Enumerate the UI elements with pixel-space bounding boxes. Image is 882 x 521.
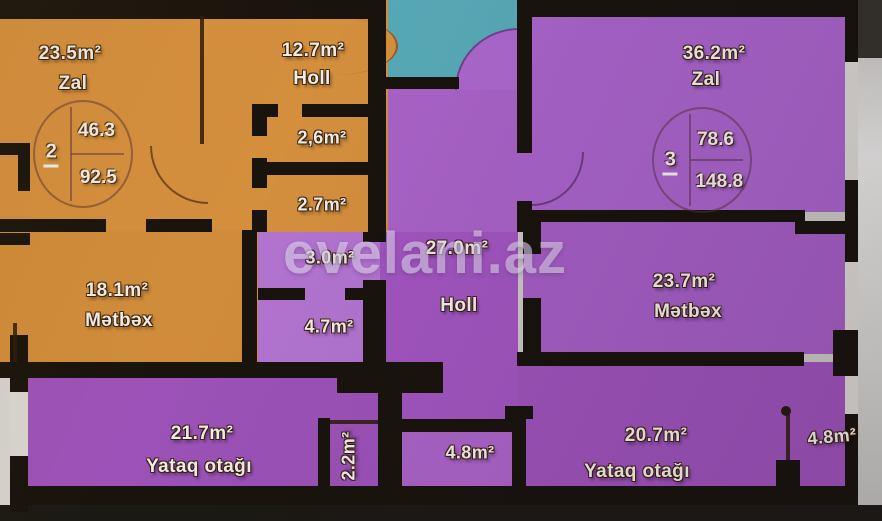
label-wc-left-area: 2.7m² [297,195,346,216]
unit-3-living-area: 78.6 [697,129,734,151]
wall [10,456,28,512]
balcony-rail [13,323,17,365]
balcony-wall [0,233,30,245]
door-pivot-dot [781,406,791,416]
wall [302,104,386,117]
wall [252,210,267,232]
label-holl-right-name: Holl [440,295,478,317]
wall [242,230,257,364]
wall [845,180,858,262]
label-balcony-center-area: 4.8m² [445,443,494,464]
wall [378,419,518,432]
unit-3-total-area: 148.8 [695,171,743,193]
circle-divider-horizontal [690,159,743,161]
photo-bottom-band [0,505,882,521]
unit-3-info-circle: 3 78.6 148.8 [652,107,752,213]
label-metbex-right-area: 23.7m² [653,271,716,293]
label-holl-left-name: Holl [293,68,331,90]
wall [318,418,330,488]
label-holl-left-area: 12.7m² [282,40,345,62]
door-line [786,412,790,464]
door-line [330,420,378,424]
unit-2-info-circle: 2 46.3 92.5 [33,100,133,208]
unit-2-number: 2 [44,141,59,168]
window [10,392,28,456]
wall [517,0,858,17]
label-metbex-left-name: Mətbəx [85,310,153,332]
wall [252,158,267,188]
label-bath-left-area: 2,6m² [297,128,346,149]
unit-2-total-area: 92.5 [80,167,117,189]
label-bedroom-left-area: 21.7m² [171,423,234,445]
wall [795,221,845,234]
label-metbex-left-area: 18.1m² [86,280,149,302]
label-bedroom-right-name: Yataq otağı [584,461,690,483]
label-closet-area: 2.2m² [339,431,360,480]
window [845,62,858,180]
window [845,376,858,414]
scan-edge-right [858,0,882,521]
label-zal-right-area: 36.2m² [683,43,746,65]
label-zal-right-name: Zal [692,69,721,91]
label-bedroom-right-area: 20.7m² [625,425,688,447]
wall [363,280,386,364]
wall [517,352,804,366]
floorplan-canvas: 2 46.3 92.5 3 78.6 148.8 23.5m² Zal 12.7… [0,0,882,521]
room-corridor [386,86,517,232]
wall [0,219,106,232]
wall [252,162,386,175]
wall [386,77,459,89]
partition-line [200,16,204,144]
label-zal-left-area: 23.5m² [39,43,102,65]
unit-3-number: 3 [663,149,678,176]
watermark: evelani.az [283,220,567,287]
label-metbex-right-name: Mətbəx [654,301,722,323]
wall [523,298,541,356]
balcony-wall [18,153,30,191]
window [845,262,858,330]
wall [776,460,800,488]
label-balcony-right-area: 4.8m² [807,424,858,449]
scan-edge-right-top-shadow [855,0,882,58]
wall [845,0,858,62]
label-bedroom-left-name: Yataq otağı [146,456,252,478]
wall [146,219,212,232]
unit-2-living-area: 46.3 [78,120,115,142]
circle-divider-horizontal [71,153,124,155]
scan-edge-left-bottom [0,378,10,508]
wall [833,330,858,376]
wall [252,104,267,136]
wall [517,8,532,153]
label-bath-right-area: 4.7m² [304,317,353,338]
wall [512,406,526,488]
wall [0,0,377,19]
label-zal-left-name: Zal [59,73,88,95]
wall [337,376,443,393]
wall [378,393,402,488]
wall [258,288,305,300]
